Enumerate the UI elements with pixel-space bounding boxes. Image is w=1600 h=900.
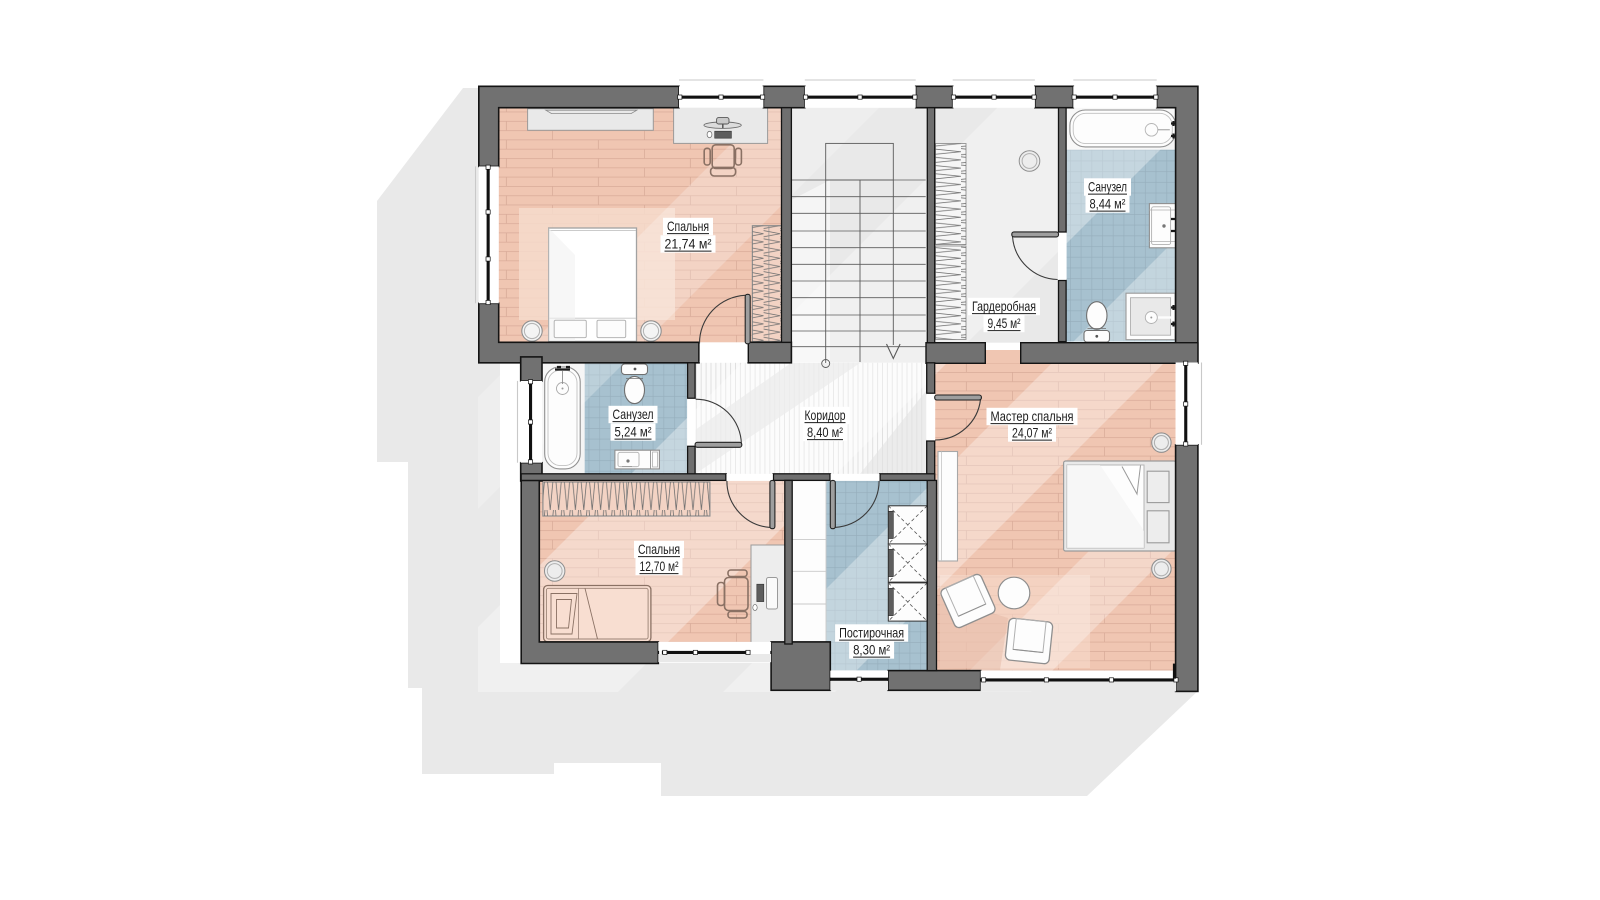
svg-text:Гардеробная: Гардеробная [972,299,1036,314]
svg-text:Постирочная: Постирочная [839,626,904,641]
svg-text:8,30 м²: 8,30 м² [853,643,890,658]
svg-text:24,07 м²: 24,07 м² [1012,426,1052,441]
svg-text:Коридор: Коридор [805,408,846,423]
svg-text:9,45 м²: 9,45 м² [988,316,1021,331]
svg-text:5,24 м²: 5,24 м² [615,425,652,440]
svg-text:Спальня: Спальня [638,542,680,557]
svg-text:Санузел: Санузел [613,407,654,422]
svg-text:8,44 м²: 8,44 м² [1090,197,1126,212]
svg-text:Мастер спальня: Мастер спальня [991,409,1074,424]
svg-text:12,70 м²: 12,70 м² [640,559,679,574]
svg-text:8,40 м²: 8,40 м² [807,425,843,440]
svg-text:21,74 м²: 21,74 м² [665,237,712,252]
svg-text:Спальня: Спальня [667,219,709,234]
svg-text:Санузел: Санузел [1088,180,1127,195]
